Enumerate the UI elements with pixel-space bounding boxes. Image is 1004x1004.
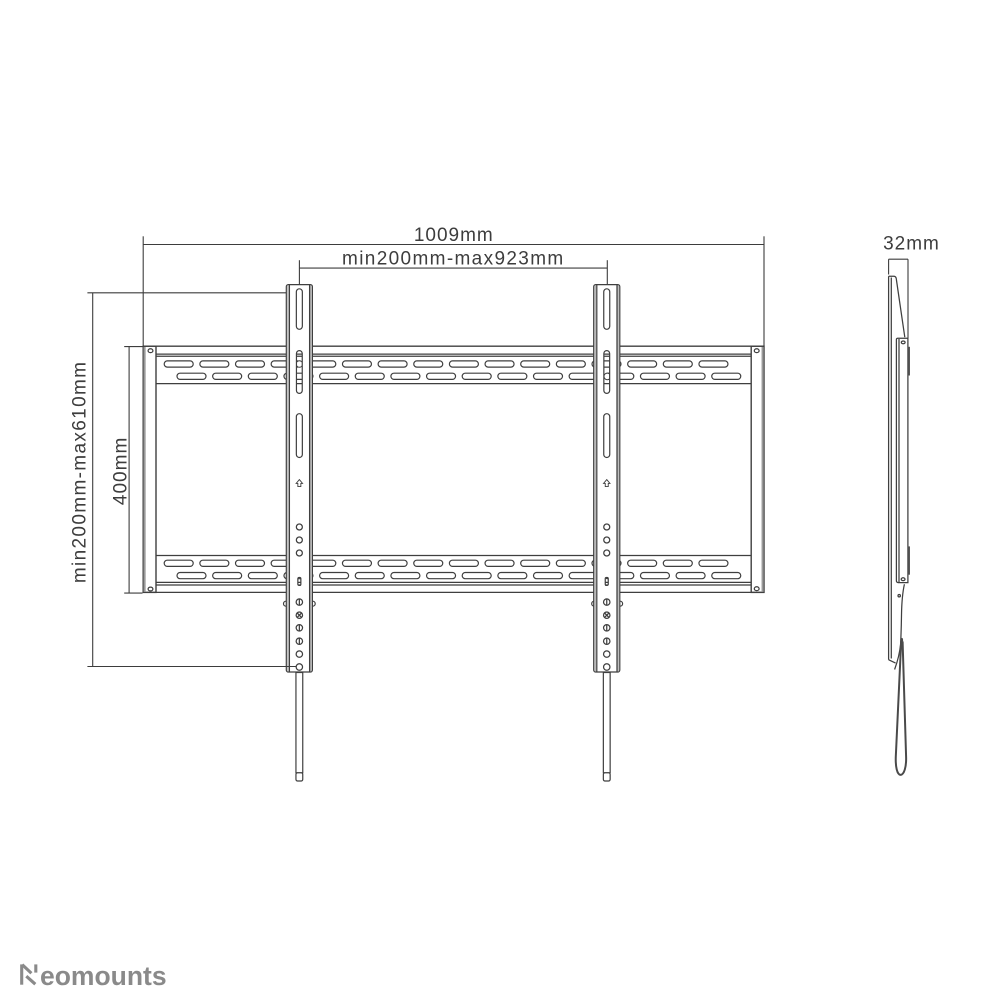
svg-text:min200mm-max610mm: min200mm-max610mm (69, 361, 90, 584)
svg-text:eomounts: eomounts (40, 961, 167, 991)
svg-text:1009mm: 1009mm (414, 225, 494, 246)
svg-text:min200mm-max923mm: min200mm-max923mm (342, 248, 565, 269)
svg-text:32mm: 32mm (883, 234, 940, 255)
svg-text:400mm: 400mm (111, 437, 132, 505)
